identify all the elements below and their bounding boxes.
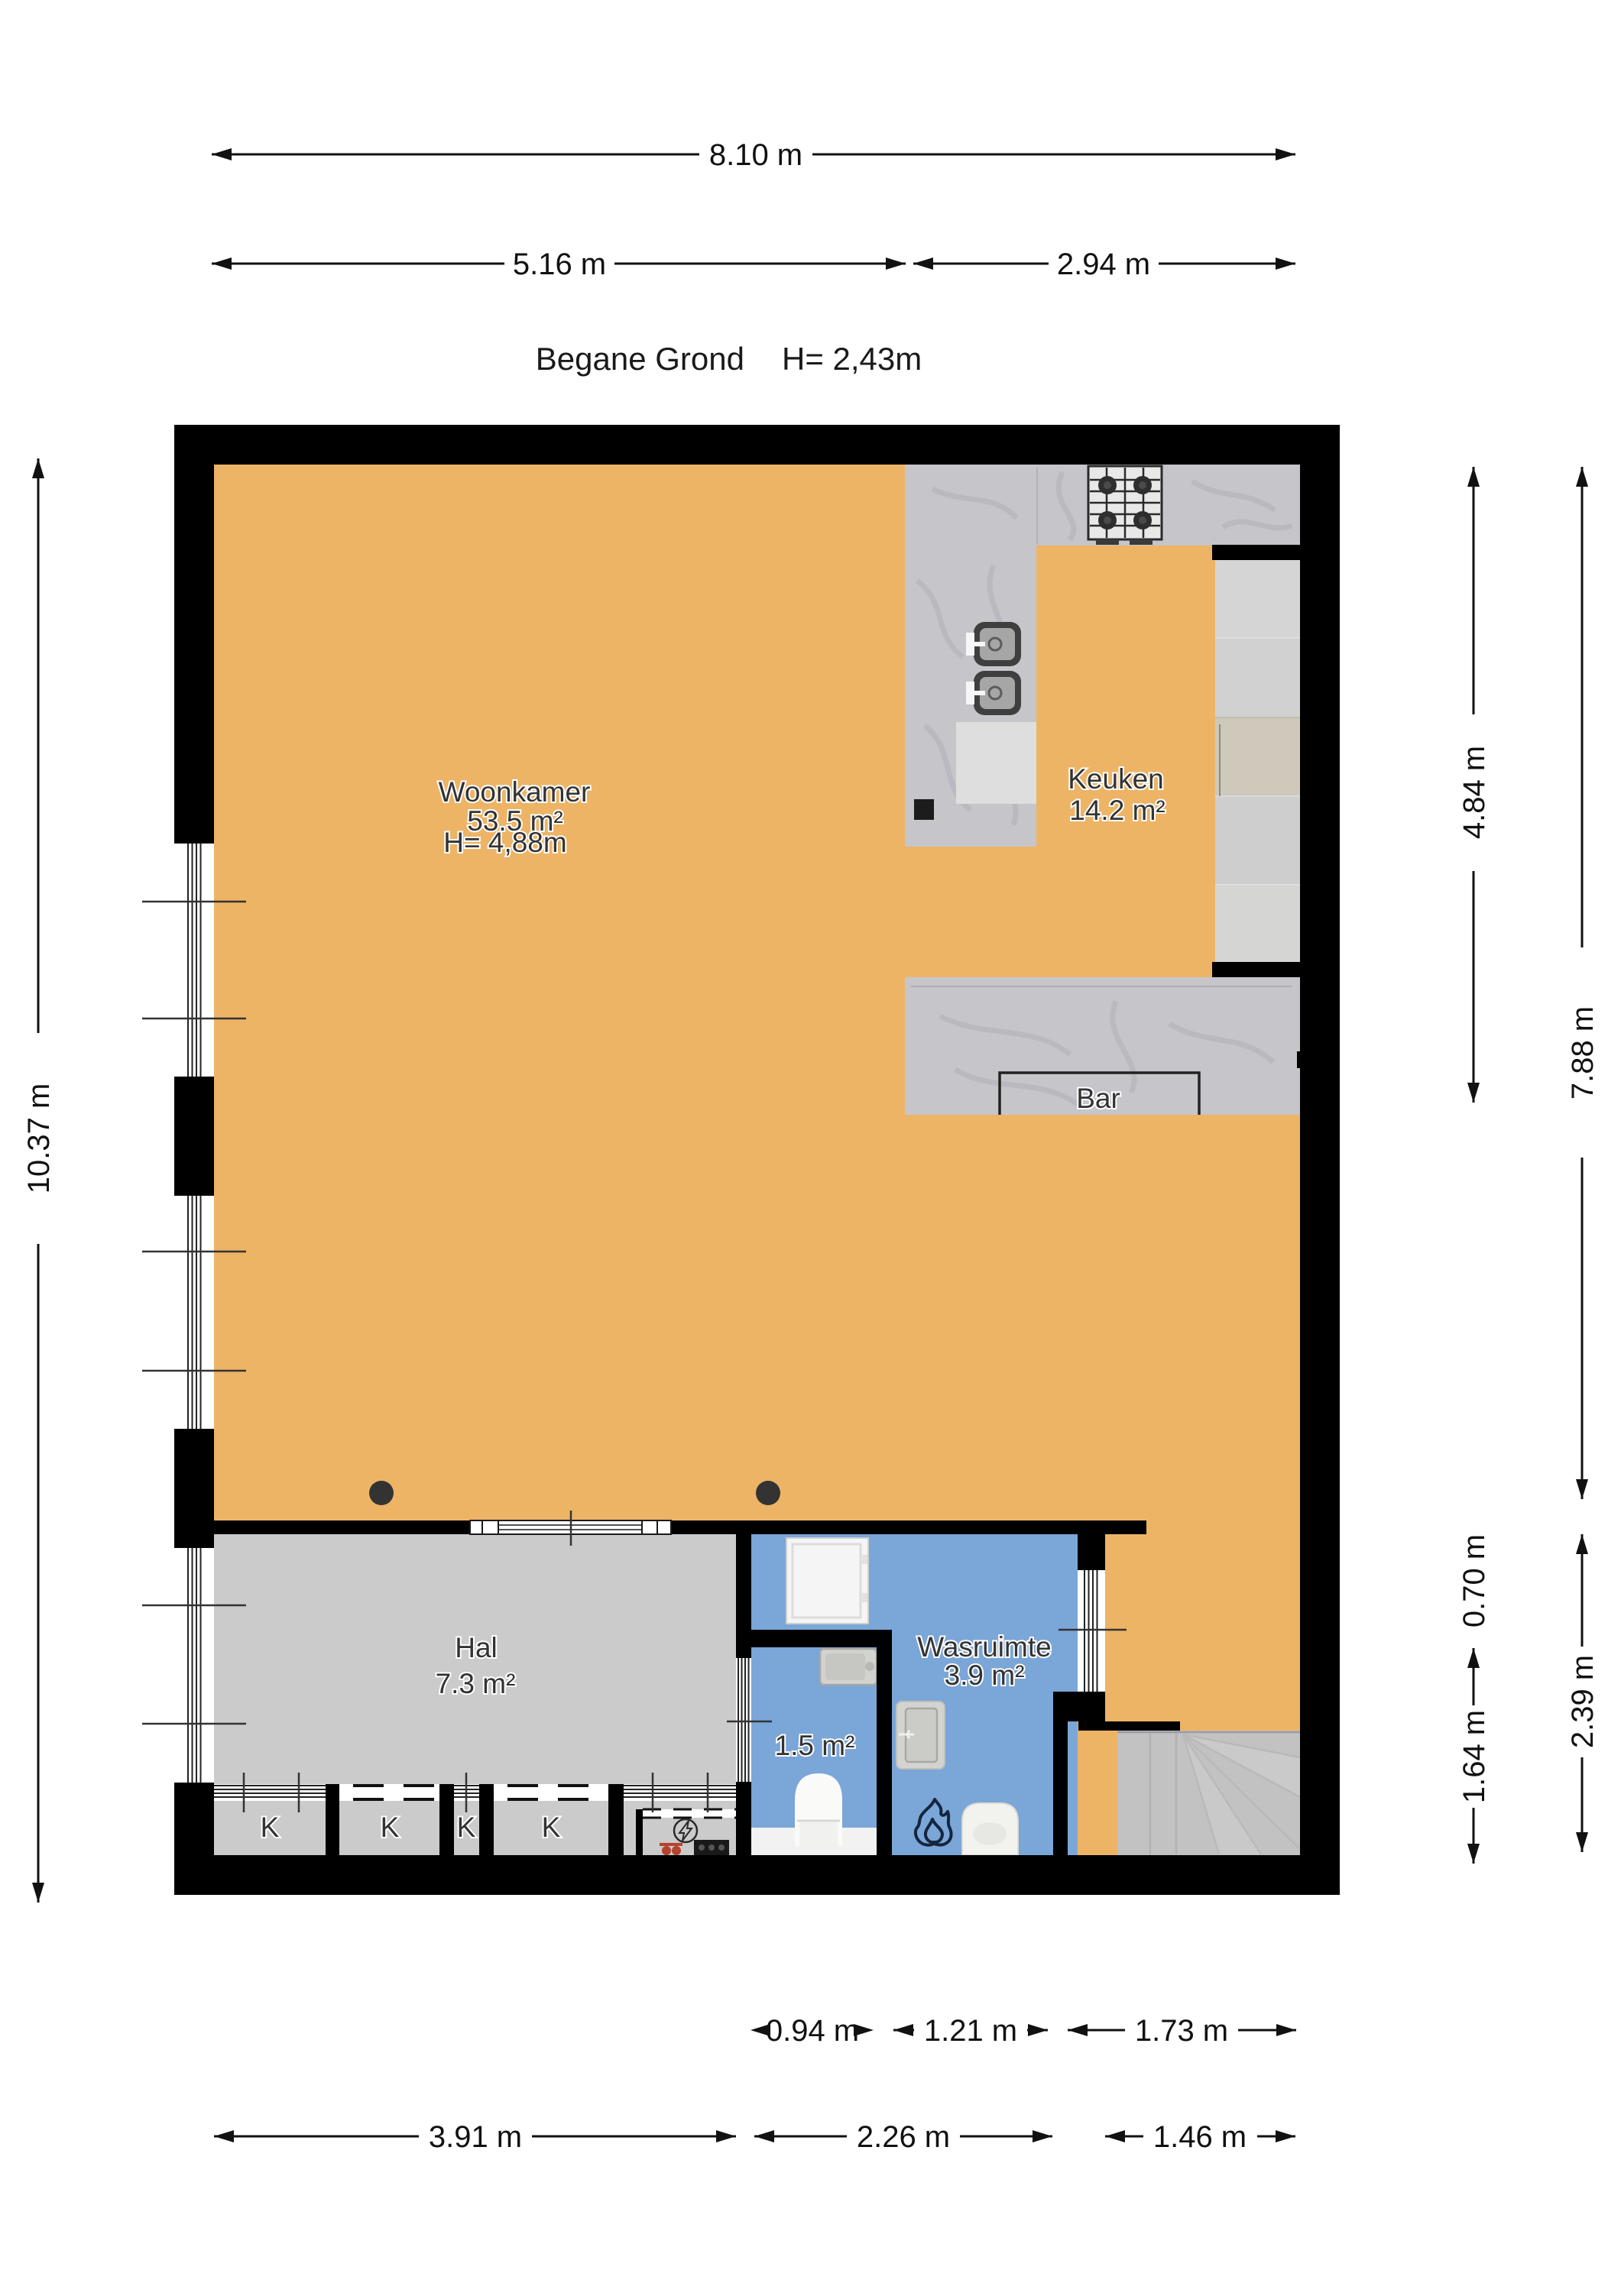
svg-text:1.46 m: 1.46 m — [1153, 2120, 1247, 2154]
svg-text:0.70 m: 0.70 m — [1457, 1534, 1491, 1627]
svg-text:7.88 m: 7.88 m — [1566, 1006, 1600, 1099]
svg-text:7.3 m²: 7.3 m² — [436, 1668, 516, 1699]
svg-text:Wasruimte: Wasruimte — [917, 1631, 1051, 1663]
svg-text:Hal: Hal — [455, 1632, 498, 1663]
svg-text:1.5 m²: 1.5 m² — [775, 1730, 855, 1761]
svg-text:1.21 m: 1.21 m — [924, 2014, 1017, 2048]
svg-text:Woonkamer: Woonkamer — [439, 776, 591, 808]
svg-text:2.39 m: 2.39 m — [1566, 1655, 1600, 1748]
svg-text:3.91 m: 3.91 m — [429, 2120, 522, 2154]
svg-text:4.84 m: 4.84 m — [1457, 746, 1491, 839]
svg-text:1.64 m: 1.64 m — [1457, 1710, 1491, 1803]
svg-text:Begane Grond: Begane Grond — [536, 341, 744, 377]
svg-text:K: K — [261, 1812, 280, 1843]
svg-text:3.9 m²: 3.9 m² — [945, 1660, 1025, 1691]
svg-text:H= 4,88m: H= 4,88m — [443, 827, 566, 858]
svg-text:14.2 m²: 14.2 m² — [1069, 795, 1165, 826]
svg-text:H= 2,43m: H= 2,43m — [782, 341, 922, 377]
svg-text:Keuken: Keuken — [1068, 763, 1164, 795]
svg-text:1.73 m: 1.73 m — [1135, 2014, 1228, 2048]
svg-text:5.16 m: 5.16 m — [513, 248, 606, 281]
svg-text:K: K — [381, 1812, 400, 1843]
svg-text:0.94 m: 0.94 m — [766, 2014, 859, 2048]
svg-text:2.94 m: 2.94 m — [1057, 248, 1150, 281]
svg-text:10.37 m: 10.37 m — [22, 1083, 56, 1194]
svg-text:K: K — [542, 1812, 561, 1843]
svg-text:2.26 m: 2.26 m — [857, 2120, 950, 2154]
svg-text:Bar: Bar — [1076, 1083, 1120, 1114]
svg-text:8.10 m: 8.10 m — [709, 138, 802, 172]
svg-text:K: K — [457, 1812, 476, 1843]
